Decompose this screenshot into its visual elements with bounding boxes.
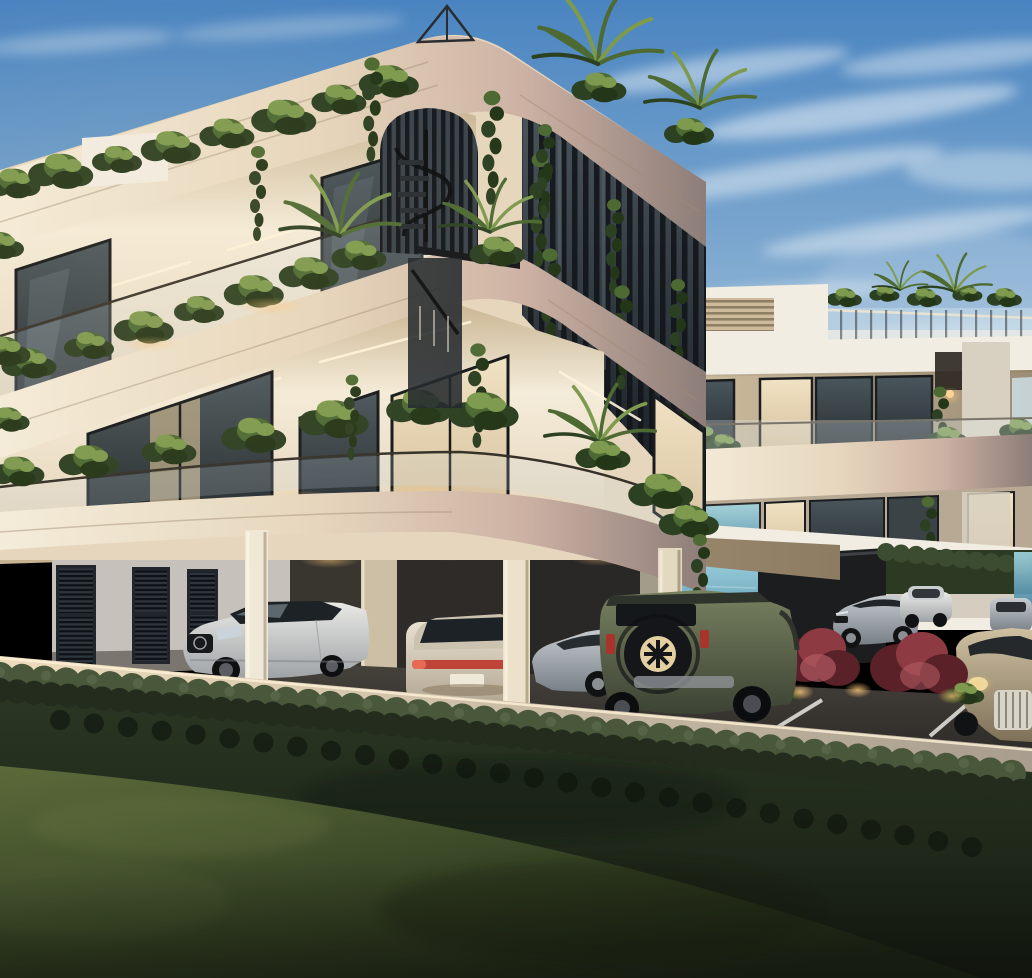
suv-taillight-right [700, 630, 709, 648]
louver-door-2 [132, 567, 170, 664]
pendant-louver [935, 352, 965, 390]
suv-bumper [634, 676, 734, 688]
car-silver-suv-far-right [990, 598, 1032, 632]
louver-door-1 [56, 565, 96, 668]
car-white-compact [900, 586, 952, 628]
suv-taillight-left [606, 634, 615, 654]
render-canvas [0, 0, 1032, 978]
scene-render [0, 0, 1032, 978]
car-green-suv [600, 590, 797, 724]
